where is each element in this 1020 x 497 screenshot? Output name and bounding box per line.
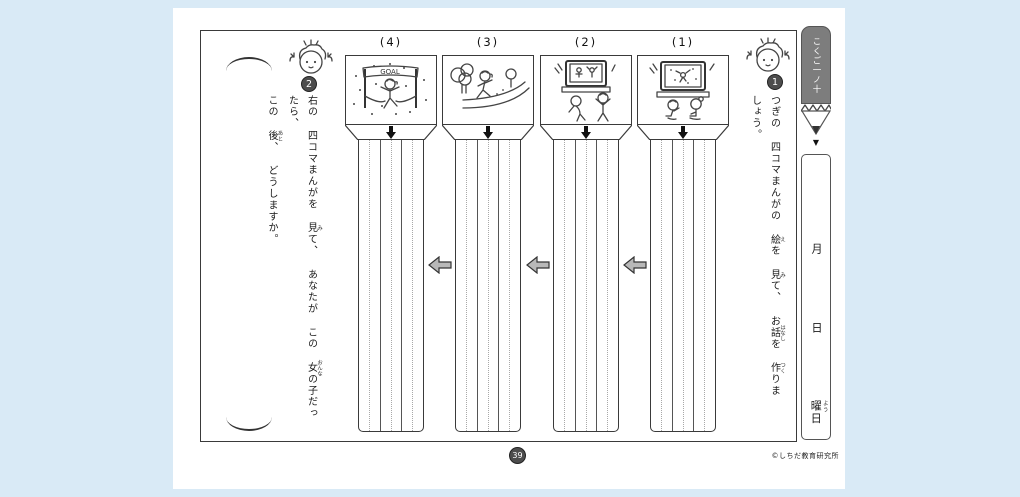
day-label: 日 (808, 322, 824, 333)
panel-label: (1) (637, 35, 729, 49)
panel-frame: GOAL (345, 55, 437, 125)
panel-illustration-tv-watching (638, 56, 727, 123)
down-arrow-icon (482, 126, 494, 139)
panel-frame (637, 55, 729, 125)
character-face-icon (743, 37, 793, 77)
panel-frame (442, 55, 534, 125)
pencil-tip-icon (801, 104, 831, 136)
panel-label: (2) (540, 35, 632, 49)
panel-illustration-running-path (443, 56, 532, 123)
weekday-label: 曜よう日 (804, 400, 827, 425)
panel-illustration-goal: GOAL (346, 56, 435, 123)
worksheet-paper: こくご一ノ十 ▼ 月 日 曜よう日 1 つぎの 四コマまんがの 絵え (173, 8, 845, 489)
page-number-badge: 39 (509, 447, 526, 464)
worksheet-background: こくご一ノ十 ▼ 月 日 曜よう日 1 つぎの 四コマまんがの 絵え (0, 0, 1020, 497)
down-arrow-icon (385, 126, 397, 139)
question-2-text: 右の 四コマまんがを 見みて、 あなたが この 女おんなの子だったら、 この 後… (276, 95, 322, 427)
date-column: 月 日 曜よう日 (801, 154, 831, 440)
panel-illustration-tv-exercise (541, 56, 630, 123)
left-arrow-icon (623, 256, 647, 274)
month-label: 月 (808, 243, 824, 254)
question-1-text: つぎの 四コマまんがの 絵えを 見みて、 お話はなしを 作つくりましょう。 (757, 95, 785, 405)
copyright-text: ©しちだ教育研究所 (772, 451, 840, 461)
down-arrow-icon (677, 126, 689, 139)
panel-label: (3) (442, 35, 534, 49)
pencil-body: こくご一ノ十 (801, 26, 831, 104)
subject-label: こくご一ノ十 (810, 37, 822, 94)
panel-frame (540, 55, 632, 125)
down-arrow-icon (580, 126, 592, 139)
pencil-pointer-icon: ▼ (801, 138, 831, 147)
question-2-line-1: 右の 四コマまんがを 見みて、 あなたが この 女おんなの子だったら、 (283, 95, 323, 427)
panel-label: (4) (345, 35, 437, 49)
answer-column (455, 139, 521, 432)
question-2-badge: 2 (301, 76, 317, 92)
answer-column (358, 139, 424, 432)
answer-column (553, 139, 619, 432)
question-2-line-2: この 後あと、 どうしますか。 (262, 95, 283, 427)
pencil-tab: こくご一ノ十 ▼ (801, 26, 831, 140)
question-1-badge: 1 (767, 74, 783, 90)
character-face-icon (286, 39, 336, 79)
answer-column (650, 139, 716, 432)
svg-text:GOAL: GOAL (380, 68, 400, 76)
left-arrow-icon (526, 256, 550, 274)
left-arrow-icon (428, 256, 452, 274)
